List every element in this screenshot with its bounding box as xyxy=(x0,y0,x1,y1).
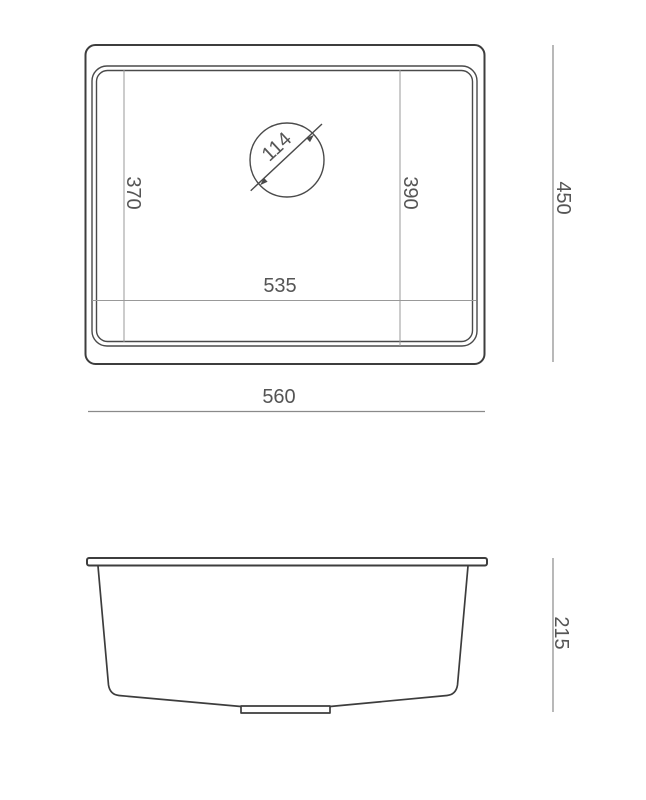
dim-label-bowl-inner-width: 535 xyxy=(263,276,296,296)
dim-label-overall-depth: 450 xyxy=(553,181,573,214)
bowl-profile-left-wall xyxy=(98,566,241,707)
dim-label-bowl-height: 215 xyxy=(551,616,571,649)
sink-technical-drawing: 370 390 114 535 560 450 215 xyxy=(0,0,646,800)
dim-label-overall-width: 560 xyxy=(262,387,295,407)
sink-flange-profile xyxy=(87,558,487,566)
dim-label-bowl-depth-right: 390 xyxy=(400,176,420,209)
bowl-profile-right-wall xyxy=(330,566,468,707)
side-view xyxy=(87,558,553,713)
dim-label-bowl-depth-left: 370 xyxy=(123,176,143,209)
sink-outer-edge xyxy=(86,45,485,364)
drawing-canvas xyxy=(0,0,646,800)
drain-fitting-profile xyxy=(241,706,330,713)
top-view xyxy=(86,45,554,412)
